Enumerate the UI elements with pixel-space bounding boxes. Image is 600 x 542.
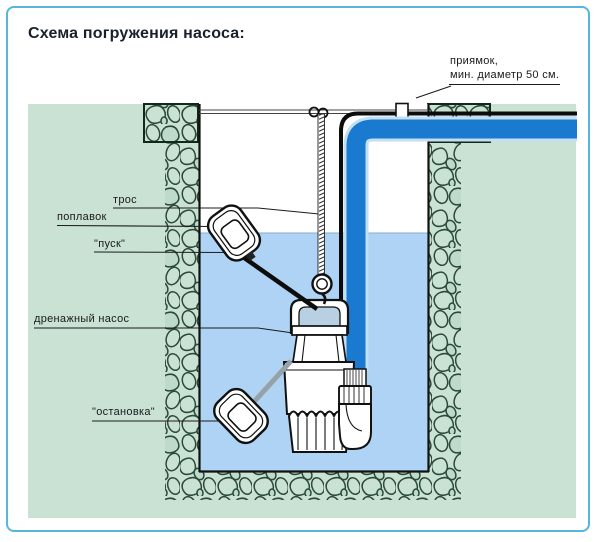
page-title: Схема погружения насоса:: [28, 25, 245, 43]
label-rope: трос: [113, 194, 137, 206]
leader-start: [94, 252, 231, 253]
label-pit-line2: мин. диаметр 50 см.: [450, 68, 559, 82]
label-stop: "остановка": [92, 406, 155, 418]
rope-body: [318, 114, 325, 276]
pit-left-cap: [144, 104, 198, 142]
pit-floor: [165, 472, 461, 500]
leader-pit-slant: [416, 86, 451, 98]
pump-installation-diagram: Схема погружения насоса: приямок, мин. д…: [0, 0, 600, 542]
label-drainage-pump: дренажный насос: [34, 313, 129, 325]
label-float: поплавок: [57, 211, 107, 223]
pit-right-wall: [428, 104, 461, 472]
label-pit: приямок, мин. диаметр 50 см.: [450, 54, 559, 82]
pit-left-wall: [165, 104, 199, 472]
label-start: "пуск": [94, 238, 125, 250]
pump-top-plate: [292, 326, 347, 335]
label-pit-line1: приямок,: [450, 54, 559, 68]
pump-outlet-elbow: [339, 404, 371, 449]
